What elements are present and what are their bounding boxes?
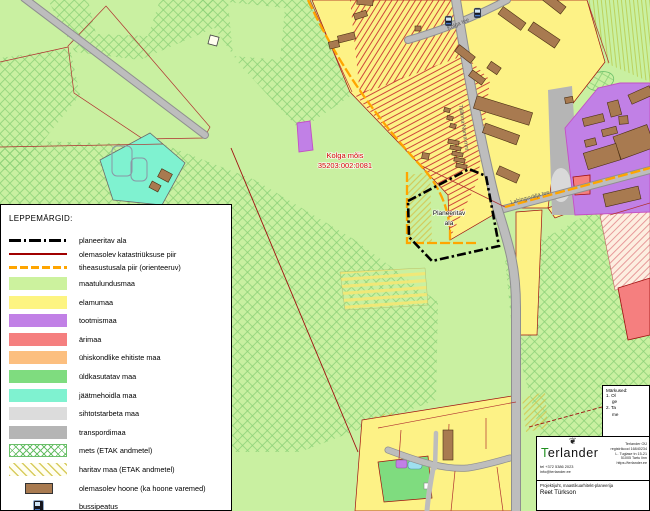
legend-label: transpordimaa	[79, 428, 126, 437]
legend-symbol-swatch	[9, 314, 67, 327]
legend-item: olemasolev katastriüksuse piir	[9, 247, 231, 260]
legend-label: tiheasustusala piir (orienteeruv)	[79, 263, 181, 272]
legend-swatch	[9, 370, 67, 383]
title-block: ❦ Terlander Terlander OÜ registrikood 16…	[536, 436, 650, 511]
legend-item: elamumaa	[9, 293, 231, 312]
legend-swatch	[9, 426, 67, 439]
legend-item: ühiskondlike ehitiste maa	[9, 349, 231, 368]
legend-swatch	[9, 463, 67, 476]
company-name: Terlander	[541, 446, 599, 460]
legend-swatch	[9, 351, 67, 364]
legend-items: planeeritav alaolemasolev katastriüksuse…	[9, 234, 231, 511]
legend-symbol-building	[9, 483, 67, 494]
legend-item: üldkasutatav maa	[9, 367, 231, 386]
company-contact: tel +372 5386 2023 info@terlander.ee	[540, 464, 573, 475]
legend-label: jäätmehoidla maa	[79, 391, 137, 400]
legend-symbol-dash-orange	[9, 266, 67, 269]
legend-item: ärimaa	[9, 330, 231, 349]
legend-swatch	[9, 407, 67, 420]
bus-stop-icon	[474, 8, 481, 18]
author-role: Projektijuht, maastikuarhitekt-planeerij…	[540, 483, 613, 488]
legend-swatch	[9, 314, 67, 327]
legend-label: sihtotstarbeta maa	[79, 409, 139, 418]
legend-item: sihtotstarbeta maa	[9, 404, 231, 423]
legend-symbol-swatch	[9, 370, 67, 383]
legend-item: transpordimaa	[9, 423, 231, 442]
bus-stop-icon	[33, 500, 44, 511]
legend-item: bussipeatus	[9, 497, 231, 511]
legend-symbol-swatch	[9, 277, 67, 290]
legend-label: olemasolev hoone (ka hoone varemed)	[79, 484, 206, 493]
legend-symbol-line	[9, 253, 67, 255]
legend-symbol-hatch-diag	[9, 463, 67, 476]
legend-swatch	[9, 266, 67, 269]
small-plot-outline	[208, 35, 219, 46]
legend-swatch	[9, 296, 67, 309]
legend-label: ühiskondlike ehitiste maa	[79, 353, 161, 362]
legend-box: LEPPEMÄRGID: planeeritav alaolemasolev k…	[0, 204, 232, 511]
legend-label: bussipeatus	[79, 502, 118, 511]
planned-area-label-line1: Planeeritav	[433, 210, 466, 217]
legend-symbol-busstop	[9, 500, 67, 511]
title-block-divider	[537, 480, 649, 481]
legend-label: mets (ETAK andmetel)	[79, 446, 152, 455]
legend-item: jäätmehoidla maa	[9, 386, 231, 405]
legend-symbol-swatch	[9, 333, 67, 346]
legend-symbol-swatch	[9, 351, 67, 364]
planning-map-page: Kolga mõis 35203:002:0081 Planeeritav al…	[0, 0, 650, 511]
legend-item: tiheasustusala piir (orienteeruv)	[9, 261, 231, 274]
legend-item: haritav maa (ETAK andmetel)	[9, 460, 231, 479]
company-name-rest: erlander	[548, 446, 599, 460]
legend-symbol-swatch	[9, 296, 67, 309]
legend-item: planeeritav ala	[9, 234, 231, 247]
company-details: Terlander OÜ registrikood 16840234 L. Tu…	[595, 442, 647, 466]
legend-swatch	[9, 253, 67, 255]
legend-symbol-hatch-cross	[9, 444, 67, 457]
planned-area-label-line2: ala	[445, 220, 454, 227]
legend-label: planeeritav ala	[79, 236, 126, 245]
legend-title: LEPPEMÄRGID:	[9, 214, 231, 223]
notes-box: Märkused: 1. Ol ge 2. Ta me	[602, 385, 650, 437]
legend-label: haritav maa (ETAK andmetel)	[79, 465, 175, 474]
legend-label: maatulundusmaa	[79, 279, 135, 288]
legend-symbol-swatch	[9, 407, 67, 420]
author-name: Reet Türkson	[540, 490, 576, 496]
legend-label: ärimaa	[79, 335, 101, 344]
legend-swatch	[9, 444, 67, 457]
notes-line: me	[606, 412, 648, 418]
legend-swatch	[25, 483, 53, 494]
company-name-initial: T	[541, 446, 548, 460]
company-detail-line: https://terlander.ee	[595, 461, 647, 466]
legend-swatch	[9, 333, 67, 346]
estate-name-label: Kolga mõis	[326, 151, 363, 160]
legend-item: tootmismaa	[9, 311, 231, 330]
estate-cadastre-label: 35203:002:0081	[318, 161, 372, 170]
legend-swatch	[9, 239, 67, 242]
legend-label: olemasolev katastriüksuse piir	[79, 250, 176, 259]
legend-label: üldkasutatav maa	[79, 372, 136, 381]
legend-item: mets (ETAK andmetel)	[9, 442, 231, 461]
legend-label: elamumaa	[79, 298, 113, 307]
legend-swatch	[9, 389, 67, 402]
company-email: info@terlander.ee	[540, 469, 573, 474]
legend-symbol-dashdot	[9, 239, 67, 242]
legend-swatch	[9, 277, 67, 290]
legend-symbol-swatch	[9, 389, 67, 402]
legend-item: maatulundusmaa	[9, 274, 231, 293]
legend-label: tootmismaa	[79, 316, 117, 325]
legend-item: olemasolev hoone (ka hoone varemed)	[9, 479, 231, 498]
legend-symbol-swatch	[9, 426, 67, 439]
